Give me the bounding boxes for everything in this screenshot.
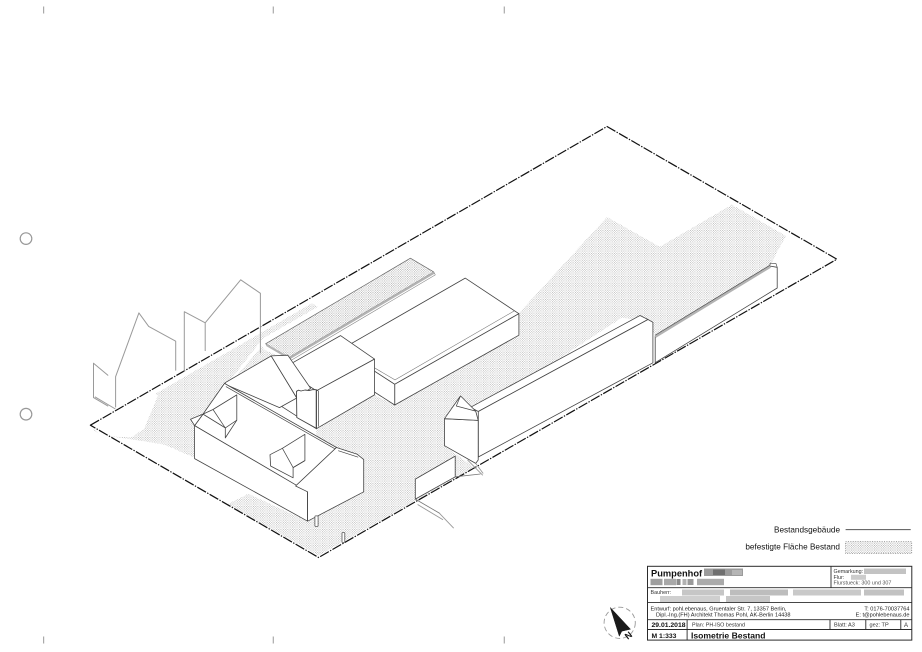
svg-text:T: 0176-70037764: T: 0176-70037764 xyxy=(864,606,909,612)
svg-text:29.01.2018: 29.01.2018 xyxy=(652,622,686,629)
svg-text:Bauherr:: Bauherr: xyxy=(651,590,672,596)
svg-text:Pumpenhof: Pumpenhof xyxy=(651,569,703,579)
svg-text:Bestandsgebäude: Bestandsgebäude xyxy=(774,525,840,534)
svg-text:Dipl.-Ing.(FH) Architekt Tho: Dipl.-Ing.(FH) Architekt Thomas Pohl, AK… xyxy=(656,613,791,619)
svg-text:Blatt: A3: Blatt: A3 xyxy=(834,623,855,629)
svg-text:befestigte Fläche Bestand: befestigte Fläche Bestand xyxy=(745,543,840,552)
svg-text:gez: TP: gez: TP xyxy=(870,623,889,629)
svg-text:A: A xyxy=(904,623,908,629)
svg-text:Plan: PH-ISO bestand: Plan: PH-ISO bestand xyxy=(692,623,745,629)
svg-text:Entwurf: pohl.ebenaus, Gruent: Entwurf: pohl.ebenaus, Gruentaler Str. 7… xyxy=(651,606,787,612)
svg-text:M 1:333: M 1:333 xyxy=(652,633,677,640)
svg-text:E: t@pohlebenaus.de: E: t@pohlebenaus.de xyxy=(856,613,910,619)
svg-text:Isometrie Bestand: Isometrie Bestand xyxy=(691,630,766,640)
svg-text:Flurstueck: 300 und 307: Flurstueck: 300 und 307 xyxy=(834,581,892,587)
